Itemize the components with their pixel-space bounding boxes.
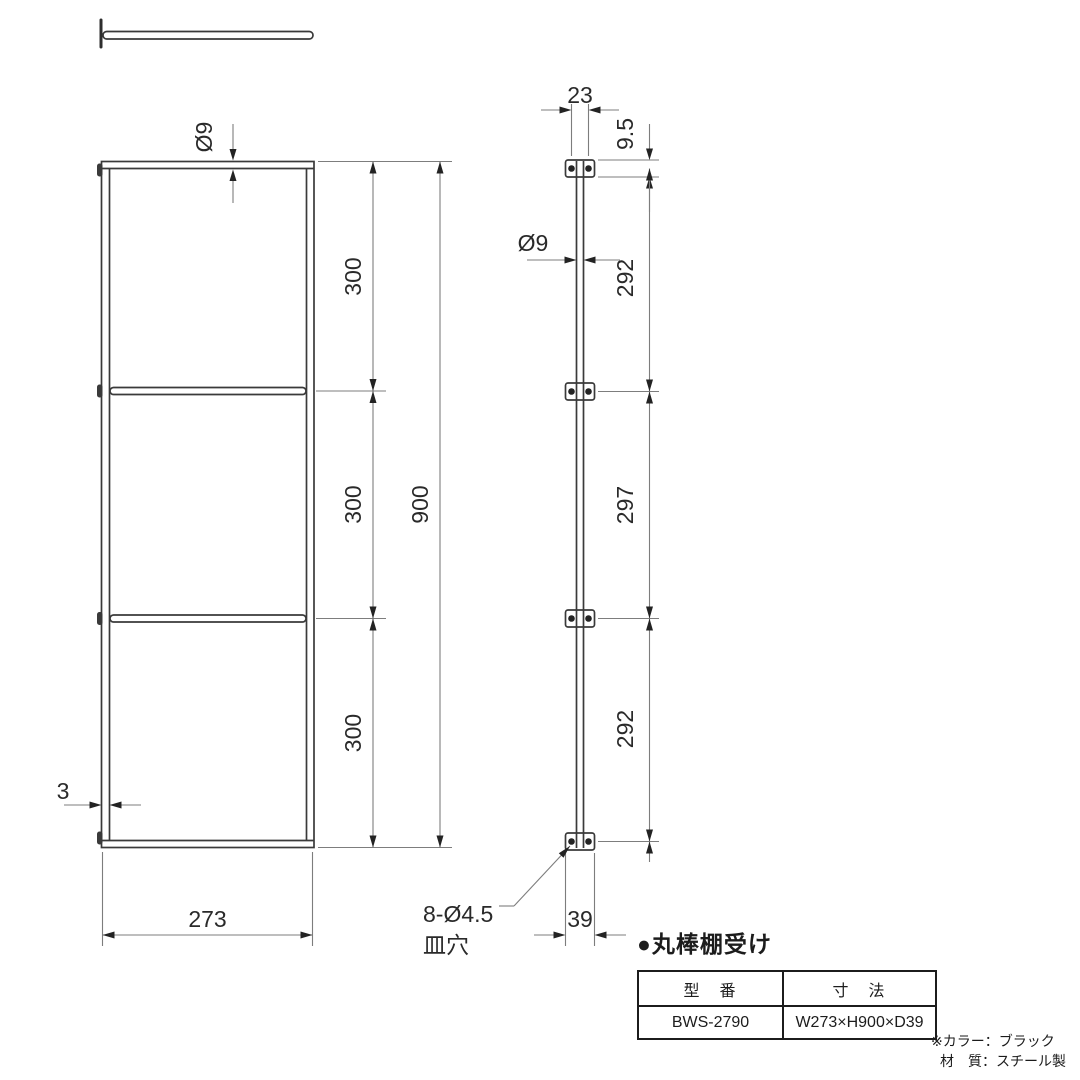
side-view-object — [566, 160, 595, 850]
note-color: ※カラー：ブラック — [931, 1031, 1079, 1051]
spec-value-model: BWS-2790 — [638, 1006, 783, 1039]
product-notes: ※カラー：ブラック 材 質：スチール製 — [931, 1031, 1079, 1071]
note-material: 材 質：スチール製 — [931, 1051, 1079, 1071]
top-view-rod — [101, 20, 313, 47]
front-rung-2 — [110, 615, 306, 622]
side-dim-segment-1: 292 — [612, 259, 638, 297]
front-dim-segment-3: 300 — [340, 714, 366, 752]
spec-value-dimensions: W273×H900×D39 — [783, 1006, 936, 1039]
front-plate-tab-4 — [97, 832, 103, 845]
front-dim-segment-2: 300 — [340, 485, 366, 523]
side-hole-callout-line2: 皿穴 — [423, 932, 469, 958]
front-dim-thickness: 3 — [57, 778, 70, 804]
spec-header-model: 型 番 — [638, 971, 783, 1006]
technical-drawing-svg: Ø9 300 300 300 900 3 273 — [0, 0, 1080, 1080]
side-dim-segment-3: 292 — [612, 710, 638, 748]
front-dim-diameter: Ø9 — [191, 122, 217, 153]
side-dim-hole-pitch: 23 — [567, 82, 593, 108]
side-hole-callout-line1: 8-Ø4.5 — [423, 901, 493, 927]
side-dim-segment-2: 297 — [612, 486, 638, 524]
front-plate-tab-2 — [97, 385, 103, 398]
spec-header-dimensions: 寸 法 — [783, 971, 936, 1006]
front-dim-width: 273 — [188, 906, 226, 932]
spec-table: 型 番 寸 法 BWS-2790 W273×H900×D39 — [637, 970, 937, 1040]
side-view-dimensions: 23 9.5 Ø9 292 297 292 39 8-Ø4.5 皿穴 — [423, 82, 659, 958]
front-view-dimensions: Ø9 300 300 300 900 3 273 — [57, 122, 452, 946]
front-rung-1 — [110, 388, 306, 395]
side-dim-plate-height: 9.5 — [612, 118, 638, 150]
spec-table-value-row: BWS-2790 W273×H900×D39 — [638, 1006, 936, 1039]
side-dim-rod-diameter: Ø9 — [518, 230, 549, 256]
front-view-frame — [97, 162, 314, 848]
front-plate-tab-1 — [97, 164, 103, 177]
spec-table-header-row: 型 番 寸 法 — [638, 971, 936, 1006]
product-info-block: ●丸棒棚受け 型 番 寸 法 BWS-2790 W273×H900×D39 — [637, 925, 939, 1040]
side-dim-depth: 39 — [567, 906, 593, 932]
technical-drawing-page: Ø9 300 300 300 900 3 273 — [0, 0, 1080, 1080]
front-plate-tab-3 — [97, 612, 103, 625]
side-plate-screw-holes — [568, 165, 592, 845]
product-title: ●丸棒棚受け — [637, 925, 939, 959]
front-dim-segment-1: 300 — [340, 257, 366, 295]
front-dim-overall: 900 — [407, 485, 433, 523]
